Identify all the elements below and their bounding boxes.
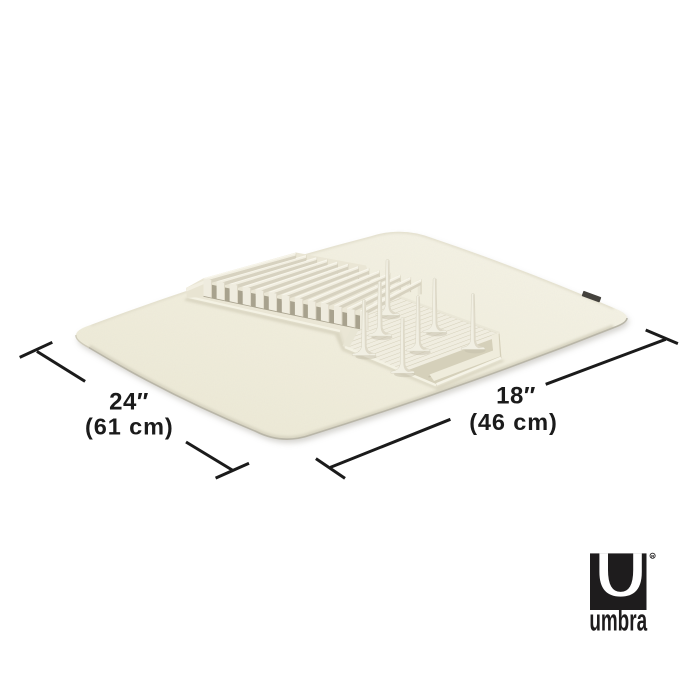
svg-text:(61 cm): (61 cm)	[85, 414, 174, 440]
svg-text:umbra: umbra	[589, 604, 647, 638]
svg-text:24″: 24″	[109, 389, 149, 416]
svg-text:(46 cm): (46 cm)	[469, 409, 558, 435]
svg-text:18″: 18″	[496, 383, 536, 410]
